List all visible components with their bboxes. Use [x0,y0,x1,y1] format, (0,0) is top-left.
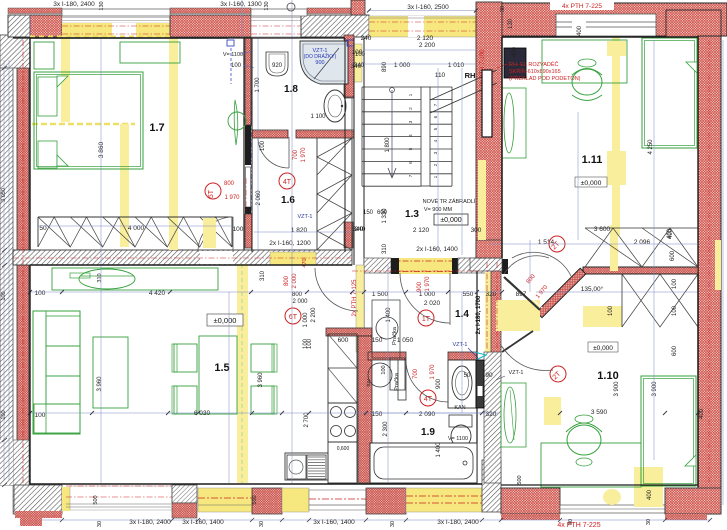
svg-text:240: 240 [361,35,372,42]
svg-text:VZT-1: VZT-1 [509,370,524,376]
svg-text:5T: 5T [208,189,215,198]
svg-text:500: 500 [517,475,523,484]
svg-text:400: 400 [647,489,653,500]
svg-text:400: 400 [512,46,518,57]
svg-text:tuv: tuv [366,379,372,387]
svg-text:2 020: 2 020 [424,300,441,307]
svg-text:±0,000: ±0,000 [214,316,237,325]
svg-text:KAN: KAN [454,405,465,411]
svg-text:1 100: 1 100 [310,114,326,120]
svg-text:310: 310 [382,243,388,254]
svg-text:1.9: 1.9 [421,427,435,438]
svg-text:4x PTH 7-225: 4x PTH 7-225 [562,3,602,10]
svg-text:1 820: 1 820 [291,227,308,234]
svg-text:900: 900 [315,60,324,66]
svg-text:1 970: 1 970 [430,364,436,380]
svg-text:4T: 4T [283,179,292,186]
svg-text:3 960: 3 960 [258,372,264,388]
svg-text:700: 700 [293,149,299,160]
svg-text:897: 897 [516,291,527,298]
svg-text:30: 30 [500,6,506,12]
svg-text:4T: 4T [424,396,433,403]
svg-text:1 050: 1 050 [397,337,414,344]
svg-text:400: 400 [699,408,705,419]
svg-text:1 000: 1 000 [394,62,411,69]
svg-text:130: 130 [264,1,270,10]
svg-text:2x I-180, 1700: 2x I-180, 1700 [476,295,482,334]
svg-text:2 000: 2 000 [292,273,298,289]
svg-text:100: 100 [352,49,363,56]
svg-text:1.7: 1.7 [149,122,164,134]
svg-text:3x I-180, 2400: 3x I-180, 2400 [437,519,479,526]
svg-text:2 060: 2 060 [256,190,262,206]
svg-text:VZT-1: VZT-1 [453,342,468,348]
svg-text:100: 100 [381,365,387,374]
svg-text:NOVÉ TR ZÁBRADLÍ: NOVÉ TR ZÁBRADLÍ [423,198,476,205]
svg-text:3 590: 3 590 [591,409,608,416]
svg-text:400: 400 [577,25,583,36]
svg-text:920: 920 [272,63,283,69]
svg-text:900: 900 [436,378,442,389]
svg-text:5: 5 [408,147,414,150]
svg-text:500: 500 [252,495,258,504]
svg-text:100: 100 [35,290,46,297]
svg-text:340: 340 [355,226,366,233]
svg-text:470: 470 [302,258,308,267]
svg-text:6T: 6T [289,314,298,321]
svg-text:800: 800 [224,181,235,187]
svg-text:1T: 1T [422,316,431,323]
svg-text:1.6: 1.6 [281,195,295,206]
svg-text:30: 30 [646,519,652,525]
svg-text:3 860: 3 860 [98,141,105,158]
svg-text:4 250: 4 250 [648,139,654,155]
svg-text:30: 30 [259,521,265,527]
svg-text:600: 600 [338,337,349,344]
svg-text:100: 100 [672,278,678,289]
svg-text:3: 3 [408,120,414,123]
svg-text:±0,000: ±0,000 [581,180,602,187]
svg-text:90: 90 [485,372,493,379]
svg-text:110: 110 [435,72,446,79]
svg-text:1: 1 [408,93,414,96]
svg-text:300: 300 [471,227,482,234]
svg-text:1.10: 1.10 [597,370,618,382]
svg-text:600: 600 [672,345,678,356]
svg-text:150: 150 [372,411,383,418]
svg-text:1 970: 1 970 [301,147,307,163]
svg-text:800: 800 [284,275,290,286]
svg-text:150: 150 [372,337,383,344]
svg-text:3 900: 3 900 [614,381,620,397]
svg-text:150: 150 [363,210,374,216]
svg-text:1 970: 1 970 [425,276,431,292]
svg-text:VZT-1: VZT-1 [298,214,313,220]
svg-text:2x I-160, 1200: 2x I-160, 1200 [269,240,311,247]
svg-text:30: 30 [390,521,396,527]
svg-text:3x I-160, 1400: 3x I-160, 1400 [182,519,224,526]
svg-text:RH- EL ROZVADĚČ: RH- EL ROZVADĚČ [509,60,559,68]
svg-text:±0,000: ±0,000 [593,345,613,352]
svg-text:600: 600 [377,210,388,216]
svg-text:2: 2 [408,107,414,110]
svg-text:1.8: 1.8 [284,84,298,95]
svg-text:(DO DRÁŽKY): (DO DRÁŽKY) [304,52,337,60]
svg-text:2 090: 2 090 [419,411,436,418]
svg-text:310: 310 [97,273,103,282]
svg-text:100: 100 [307,338,313,349]
svg-text:4: 4 [408,134,414,137]
svg-text:2 120: 2 120 [417,35,434,42]
svg-text:3x I-160, 2500: 3x I-160, 2500 [407,4,449,11]
svg-text:1.11: 1.11 [582,154,603,166]
svg-text:2 700: 2 700 [304,412,310,428]
svg-text:1 400: 1 400 [386,307,392,323]
svg-text:1 970: 1 970 [224,195,240,201]
svg-text:100: 100 [231,63,242,69]
svg-text:SKŘÍŇ-610x890x165: SKŘÍŇ-610x890x165 [509,67,561,75]
svg-text:30: 30 [97,521,103,527]
svg-text:4x PTH 7-225: 4x PTH 7-225 [557,522,600,529]
svg-text:3x I-180, 2400: 3x I-180, 2400 [129,519,171,526]
svg-text:100: 100 [260,140,266,151]
svg-text:6 030: 6 030 [194,410,211,417]
svg-text:100: 100 [233,226,244,233]
svg-text:600: 600 [670,250,676,261]
svg-text:1 800: 1 800 [385,137,391,153]
svg-text:6: 6 [408,161,414,164]
svg-text:3 900: 3 900 [652,381,658,397]
svg-text:1.3: 1.3 [405,209,419,220]
svg-text:3x I-160, 1300: 3x I-160, 1300 [220,1,262,8]
svg-text:1.5: 1.5 [214,362,229,374]
svg-text:(PŘEKLAD POD PODETÓN): (PŘEKLAD POD PODETÓN) [509,74,581,82]
svg-text:V= 1100: V= 1100 [223,52,243,58]
svg-text:800: 800 [292,292,303,298]
svg-text:100: 100 [672,305,678,316]
svg-text:3x I-180, 2400: 3x I-180, 2400 [53,1,95,8]
svg-text:1 400: 1 400 [436,442,442,458]
svg-text:3x I-160, 1400: 3x I-160, 1400 [313,519,355,526]
svg-text:Pračka: Pračka [394,372,400,391]
svg-text:2 000: 2 000 [292,299,308,305]
svg-text:2x PTH 7-125: 2x PTH 7-125 [352,279,358,317]
svg-text:V= 1100: V= 1100 [448,436,468,442]
svg-text:3 960: 3 960 [97,376,103,392]
svg-text:2 096: 2 096 [634,239,651,246]
svg-text:130: 130 [99,1,105,10]
svg-text:30: 30 [568,519,574,525]
svg-text:3 600: 3 600 [594,226,611,233]
svg-text:RH: RH [465,71,476,80]
svg-text:1 010: 1 010 [448,62,465,69]
svg-text:130: 130 [508,18,514,29]
svg-text:4 420: 4 420 [149,290,166,297]
svg-text:890: 890 [382,61,388,72]
svg-text:50: 50 [464,373,471,379]
svg-text:500: 500 [93,495,99,504]
svg-text:±0,000: ±0,000 [440,217,461,224]
svg-text:2 200: 2 200 [419,42,436,49]
svg-text:1 000: 1 000 [303,312,309,328]
svg-text:2x I-160, 1400: 2x I-160, 1400 [416,246,458,253]
svg-text:400: 400 [667,228,673,239]
svg-text:700: 700 [413,368,419,379]
svg-text:7: 7 [408,174,414,177]
svg-text:2 120: 2 120 [413,227,430,234]
svg-text:2 200: 2 200 [311,307,317,323]
svg-text:320: 320 [486,411,497,418]
svg-text:100: 100 [608,305,614,316]
svg-text:0,600: 0,600 [337,446,350,452]
svg-text:310: 310 [260,270,266,281]
